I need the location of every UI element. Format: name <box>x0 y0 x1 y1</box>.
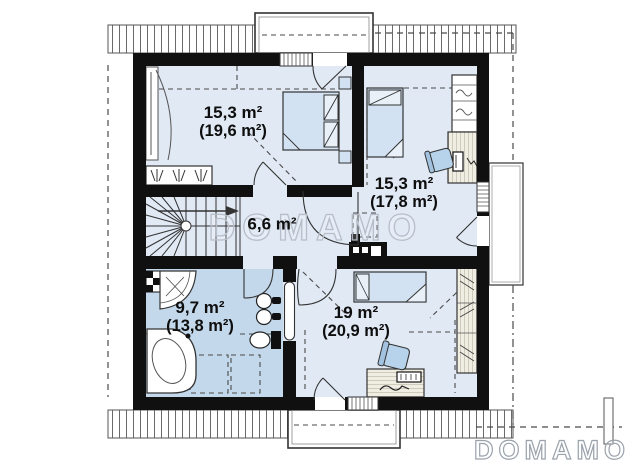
wardrobe-icon <box>457 263 477 373</box>
window-icon <box>348 397 378 410</box>
bed-icon <box>354 272 426 302</box>
room-area-total: (19,6 m²) <box>199 122 267 141</box>
room-area-total: (13,8 m²) <box>166 317 234 336</box>
room-label-bedroom-2: 15,3 m² (17,8 m²) <box>370 174 438 212</box>
window-icon <box>477 182 489 212</box>
room-label-bedroom-1: 15,3 m² (19,6 m²) <box>199 103 267 141</box>
room-area: 6,6 m² <box>247 215 296 234</box>
chimney-icon <box>146 271 160 292</box>
wardrobe-icon <box>146 166 212 185</box>
bathtub-icon <box>147 329 196 393</box>
wardrobe-icon <box>452 75 477 132</box>
nightstand-icon <box>339 77 351 89</box>
toilet-icon <box>250 331 281 349</box>
nightstand-icon <box>339 151 351 163</box>
room-area: 15,3 m² <box>199 103 267 122</box>
dormer-top <box>255 13 373 53</box>
desk-icon <box>367 369 424 397</box>
balcony <box>489 163 523 285</box>
room-label-hall: 6,6 m² <box>247 215 296 234</box>
door-leaf-panel <box>285 282 295 340</box>
bed-icon <box>283 92 339 150</box>
room-area: 9,7 m² <box>166 298 234 317</box>
room-label-bathroom: 9,7 m² (13,8 m²) <box>166 298 234 336</box>
room-area: 19 m² <box>322 303 390 322</box>
room-area-total: (20,9 m²) <box>322 322 390 341</box>
room-area: 15,3 m² <box>370 174 438 193</box>
bed-icon <box>367 88 403 157</box>
desk-icon <box>448 132 478 183</box>
room-label-bedroom-3: 19 m² (20,9 m²) <box>322 303 390 341</box>
brand-logo: DOMAMO <box>474 435 630 466</box>
dormer-bottom <box>288 410 400 448</box>
window-icon <box>280 53 312 66</box>
floor-plan: DOMAMO DOMAMO 15,3 m² (19,6 m²) 15,3 m² … <box>0 0 633 470</box>
room-area-total: (17,8 m²) <box>370 193 438 212</box>
watermark: DOMAMO <box>209 207 424 249</box>
